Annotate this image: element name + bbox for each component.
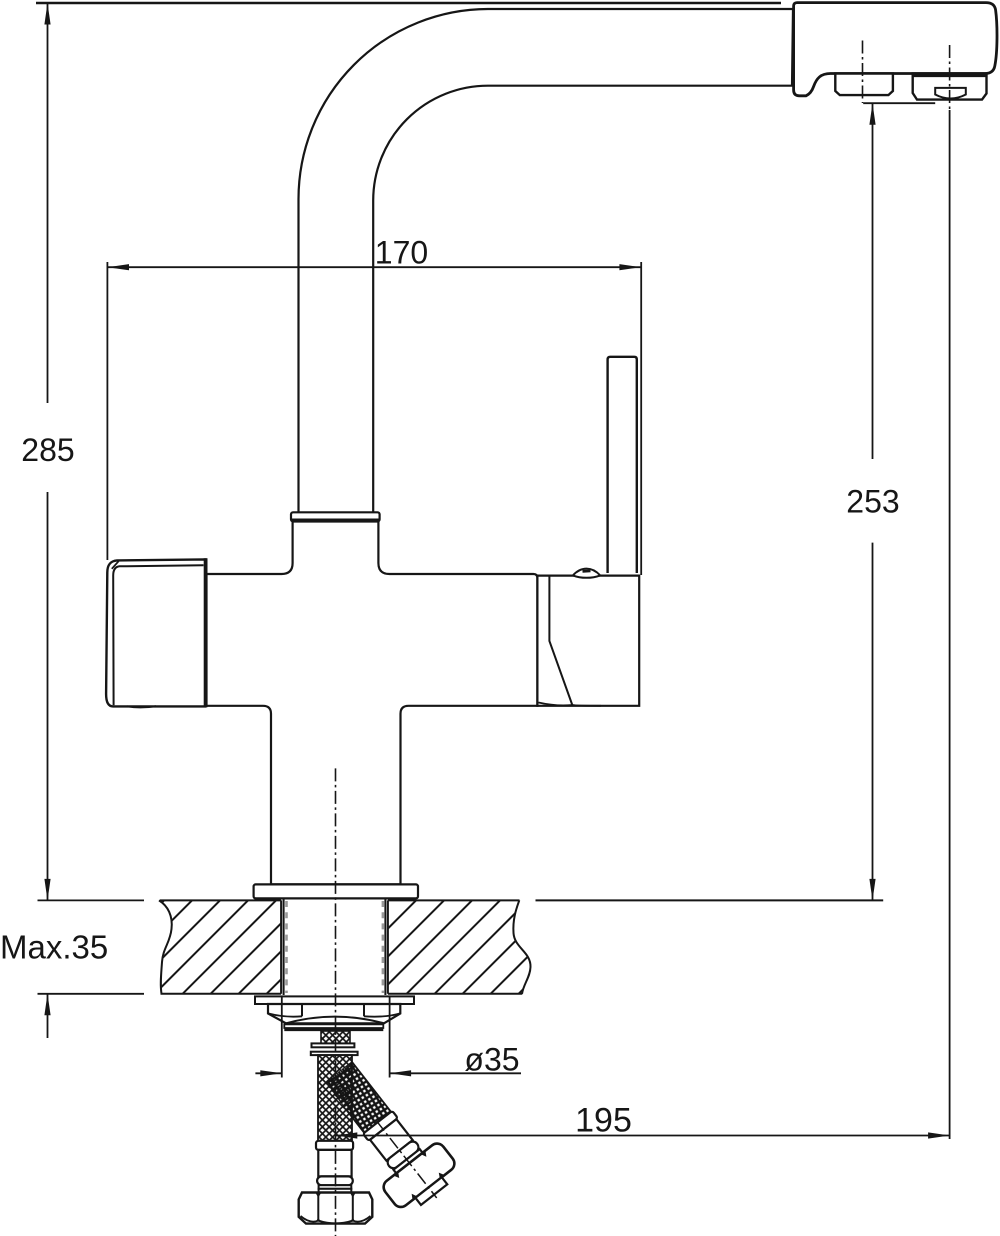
svg-text:Max.35: Max.35 xyxy=(0,929,108,966)
svg-text:253: 253 xyxy=(846,484,899,520)
svg-text:195: 195 xyxy=(575,1102,632,1140)
svg-text:285: 285 xyxy=(21,432,74,468)
svg-text:170: 170 xyxy=(375,235,428,271)
svg-text:ø35: ø35 xyxy=(464,1042,519,1078)
